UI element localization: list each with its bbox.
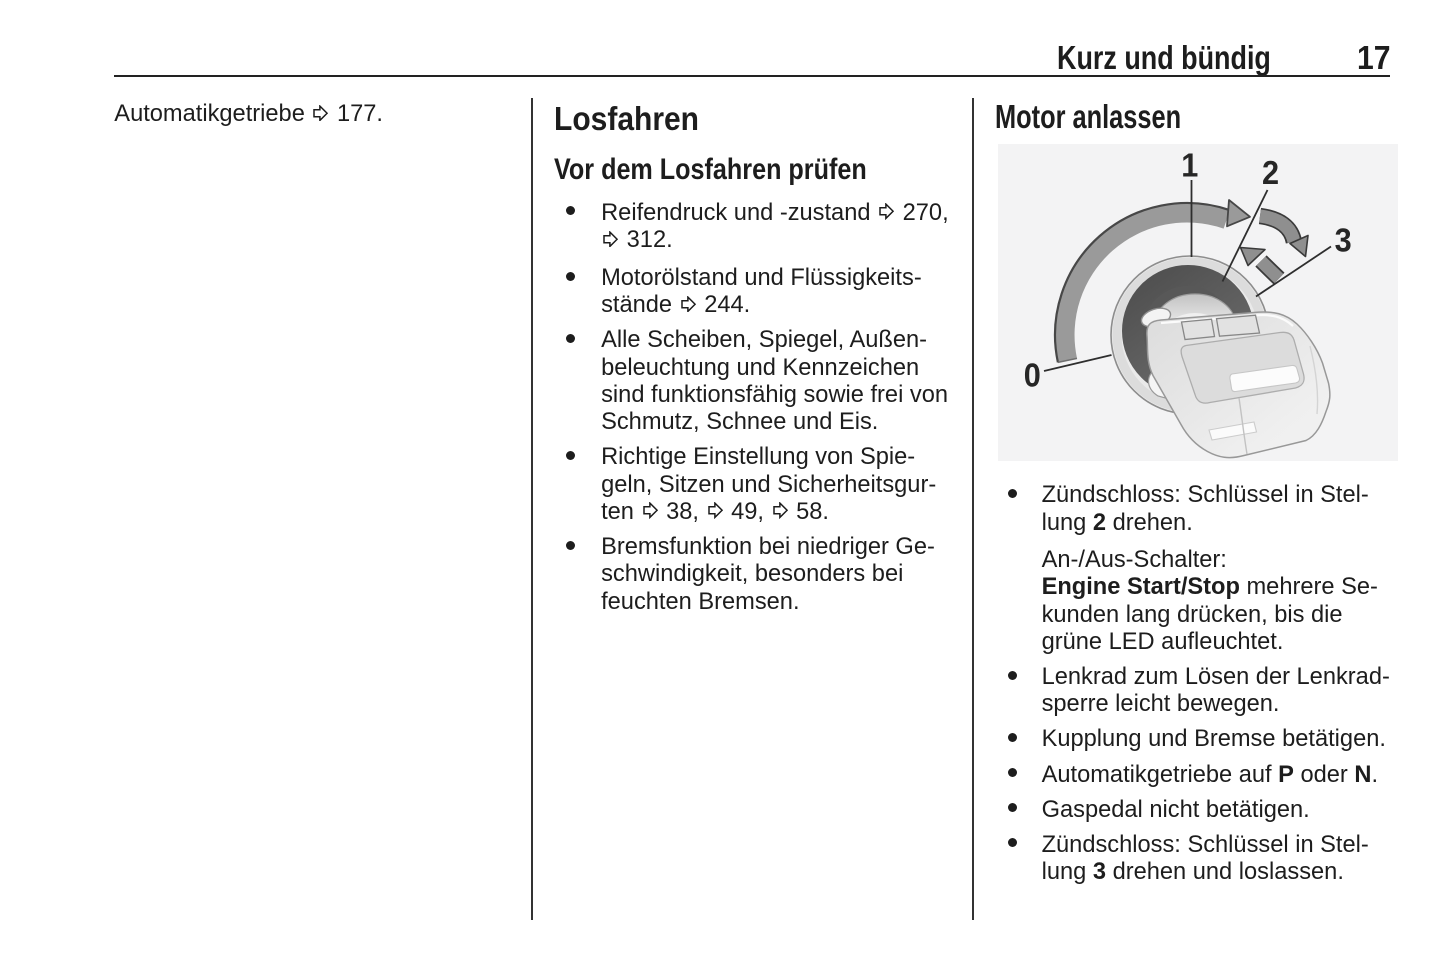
svg-text:1: 1 [1181,146,1198,183]
svg-text:2: 2 [1261,153,1278,190]
svg-text:0: 0 [1023,356,1040,393]
svg-text:3: 3 [1334,221,1351,258]
